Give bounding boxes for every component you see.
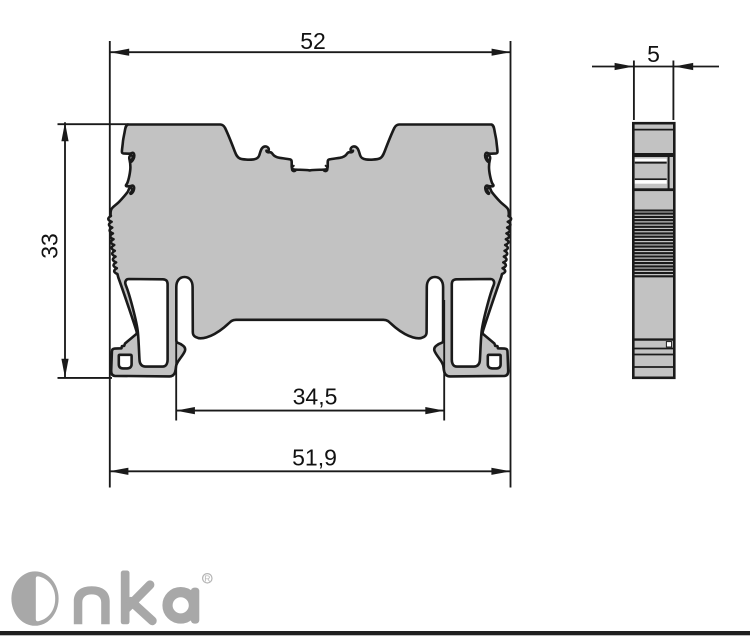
svg-text:34,5: 34,5 — [293, 384, 338, 410]
svg-text:33: 33 — [37, 233, 63, 259]
svg-text:51,9: 51,9 — [292, 445, 337, 471]
svg-text:52: 52 — [300, 28, 326, 54]
svg-text:5: 5 — [647, 41, 660, 67]
svg-text:R: R — [204, 573, 210, 583]
